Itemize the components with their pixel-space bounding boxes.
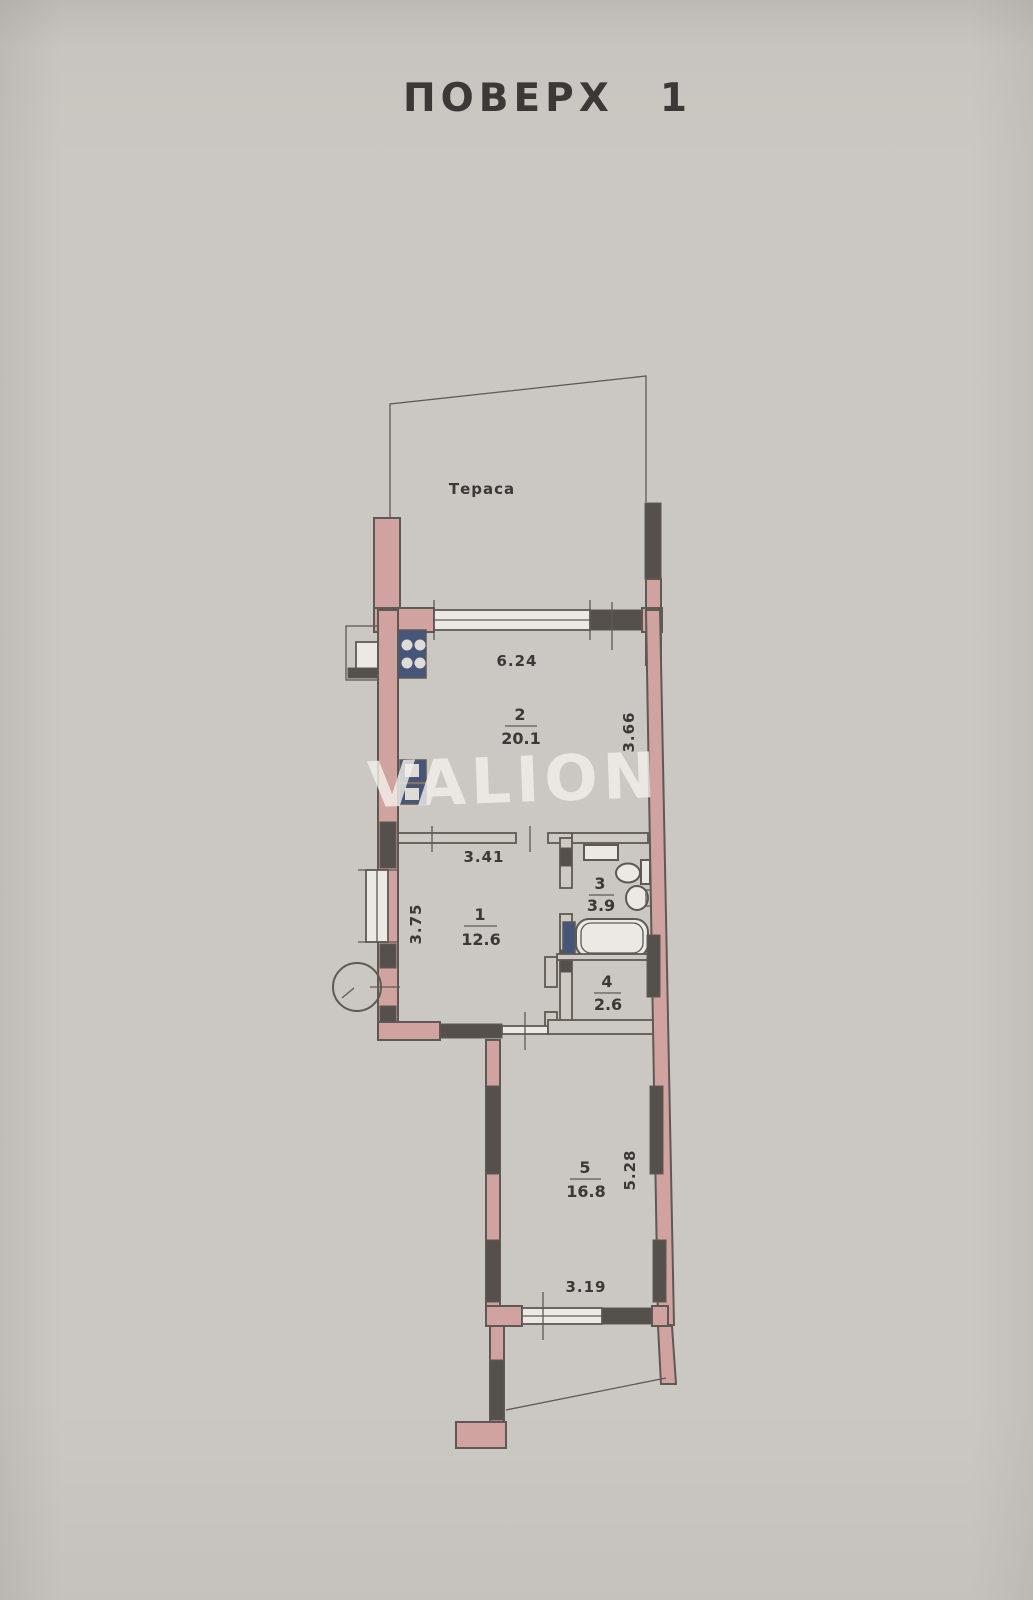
room1-area: 12.6 xyxy=(461,930,500,949)
room5-label: 5 16.8 xyxy=(566,1158,605,1201)
washer-icon xyxy=(584,845,618,860)
toilet-icon xyxy=(616,860,650,884)
lower-structure xyxy=(456,1326,676,1448)
room4-south-wall xyxy=(548,1020,662,1034)
room5-left-wall xyxy=(486,1040,500,1308)
room3-label: 3 3.9 xyxy=(587,874,615,915)
dim-room5-height: 5.28 xyxy=(621,1149,639,1190)
dim-room2-width: 6.24 xyxy=(496,652,537,670)
dim-room1-width: 3.41 xyxy=(463,848,504,866)
room5-number: 5 xyxy=(579,1158,590,1177)
water-heater-icon xyxy=(563,922,575,954)
room1-label: 1 12.6 xyxy=(461,905,500,949)
room3-area: 3.9 xyxy=(587,896,615,915)
terrace: Тераса xyxy=(390,376,646,522)
room5-area: 16.8 xyxy=(566,1182,605,1201)
right-exterior-wall xyxy=(646,610,674,1325)
room4-area: 2.6 xyxy=(594,995,622,1014)
room3-number: 3 xyxy=(594,874,605,893)
dim-room5-width: 3.19 xyxy=(565,1278,606,1296)
dim-room1-height: 3.75 xyxy=(407,903,425,944)
bathtub-icon xyxy=(563,919,648,957)
room2-label: 2 20.1 xyxy=(501,705,540,748)
bath-hall-divider-wall xyxy=(557,954,648,960)
room5-south-wall xyxy=(486,1292,668,1340)
bathroom-north-wall xyxy=(572,833,648,843)
terrace-left-column xyxy=(374,518,400,612)
room2-number: 2 xyxy=(514,705,525,724)
room4-left-wall xyxy=(545,957,557,1028)
terrace-right-column-dark xyxy=(645,503,661,579)
terrace-label: Тераса xyxy=(449,480,515,498)
room4-number: 4 xyxy=(601,972,612,991)
room1-south-wall xyxy=(378,1012,662,1050)
valion-watermark: VALION xyxy=(348,738,680,822)
stove-icon xyxy=(398,630,426,678)
room1-number: 1 xyxy=(474,905,485,924)
room4-label: 4 2.6 xyxy=(594,972,622,1014)
